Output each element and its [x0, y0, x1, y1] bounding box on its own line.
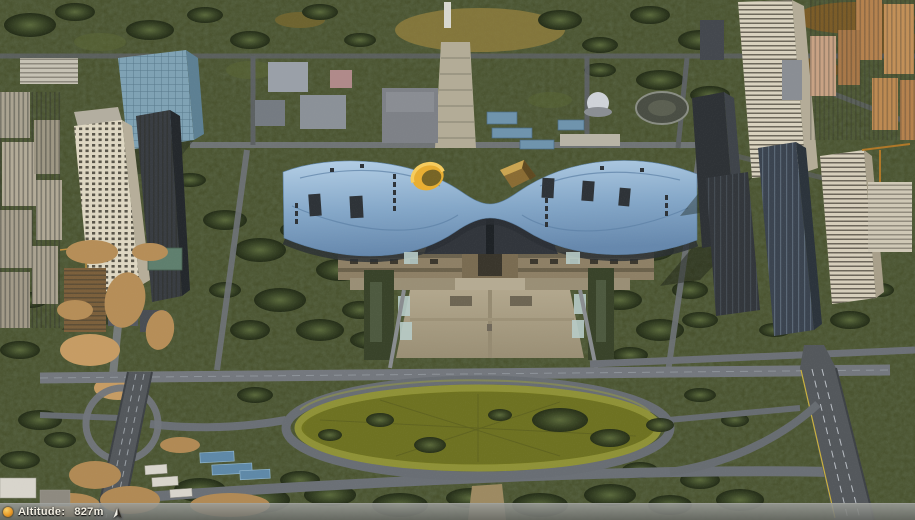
altitude-label: Altitude: — [18, 504, 65, 520]
status-bar: Altitude: 827m — [0, 503, 915, 520]
altitude-value: 827m — [74, 504, 103, 520]
streaming-indicator-icon — [3, 507, 13, 517]
north-arrow-icon[interactable] — [112, 506, 123, 519]
map-3d-viewport[interactable]: Altitude: 827m — [0, 0, 915, 520]
map-scene — [0, 0, 915, 520]
photo-grain-overlay — [0, 0, 915, 520]
